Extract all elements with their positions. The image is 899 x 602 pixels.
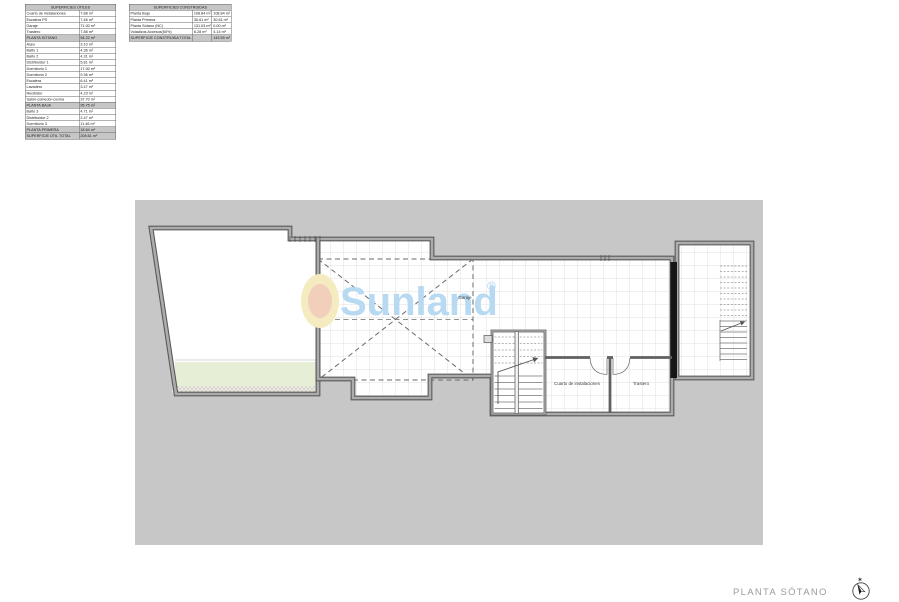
room-label-utility: Cuarto de instalaciones	[554, 381, 601, 386]
table-cell	[193, 35, 212, 41]
drawing-sheet: { "tables": { "utiles": { "title": "SUPE…	[0, 0, 899, 600]
plot-area	[151, 228, 318, 394]
room-label-storage: Trastero	[633, 381, 650, 386]
central-staircase	[484, 331, 545, 414]
table-row: SUPERFICIE ÚTIL TOTAL208.61 m²	[25, 133, 116, 139]
stair-tag	[484, 336, 492, 343]
floor-plan-drawing: Sunland ® Garaje Cuarto de instalaciones…	[135, 200, 763, 545]
north-arrow-icon: ✶	[848, 574, 876, 602]
table-cell: SUPERFICIE ÚTIL TOTAL	[25, 133, 79, 139]
table-cell: 143.59 m²	[212, 35, 231, 41]
table-row: SUPERFICIE CONSTRUIDA TOTAL143.59 m²	[129, 35, 231, 41]
table-cell: 131.03 m²	[193, 23, 212, 29]
table-cell: 108.84 m²	[212, 10, 231, 16]
garden-strip	[175, 362, 318, 386]
watermark: Sunland ®	[301, 274, 498, 328]
built-areas-table: SUPERFICIES CONSTRUIDAS Planta Baja108.8…	[129, 4, 232, 41]
sheet-title: PLANTA SÓTANO	[733, 587, 828, 598]
table-cell: 108.84 m²	[193, 10, 212, 16]
watermark-text: Sunland	[340, 280, 498, 324]
table-cell: SUPERFICIE CONSTRUIDA TOTAL	[129, 35, 192, 41]
table-cell: 208.61 m²	[79, 133, 116, 139]
useful-areas-table: SUPERFICIES ÚTILES Cuarto de instalacion…	[25, 4, 116, 139]
room-label-garage: Garaje	[458, 295, 472, 300]
registered-mark-icon: ®	[487, 279, 496, 293]
dark-wall-band	[671, 262, 678, 378]
